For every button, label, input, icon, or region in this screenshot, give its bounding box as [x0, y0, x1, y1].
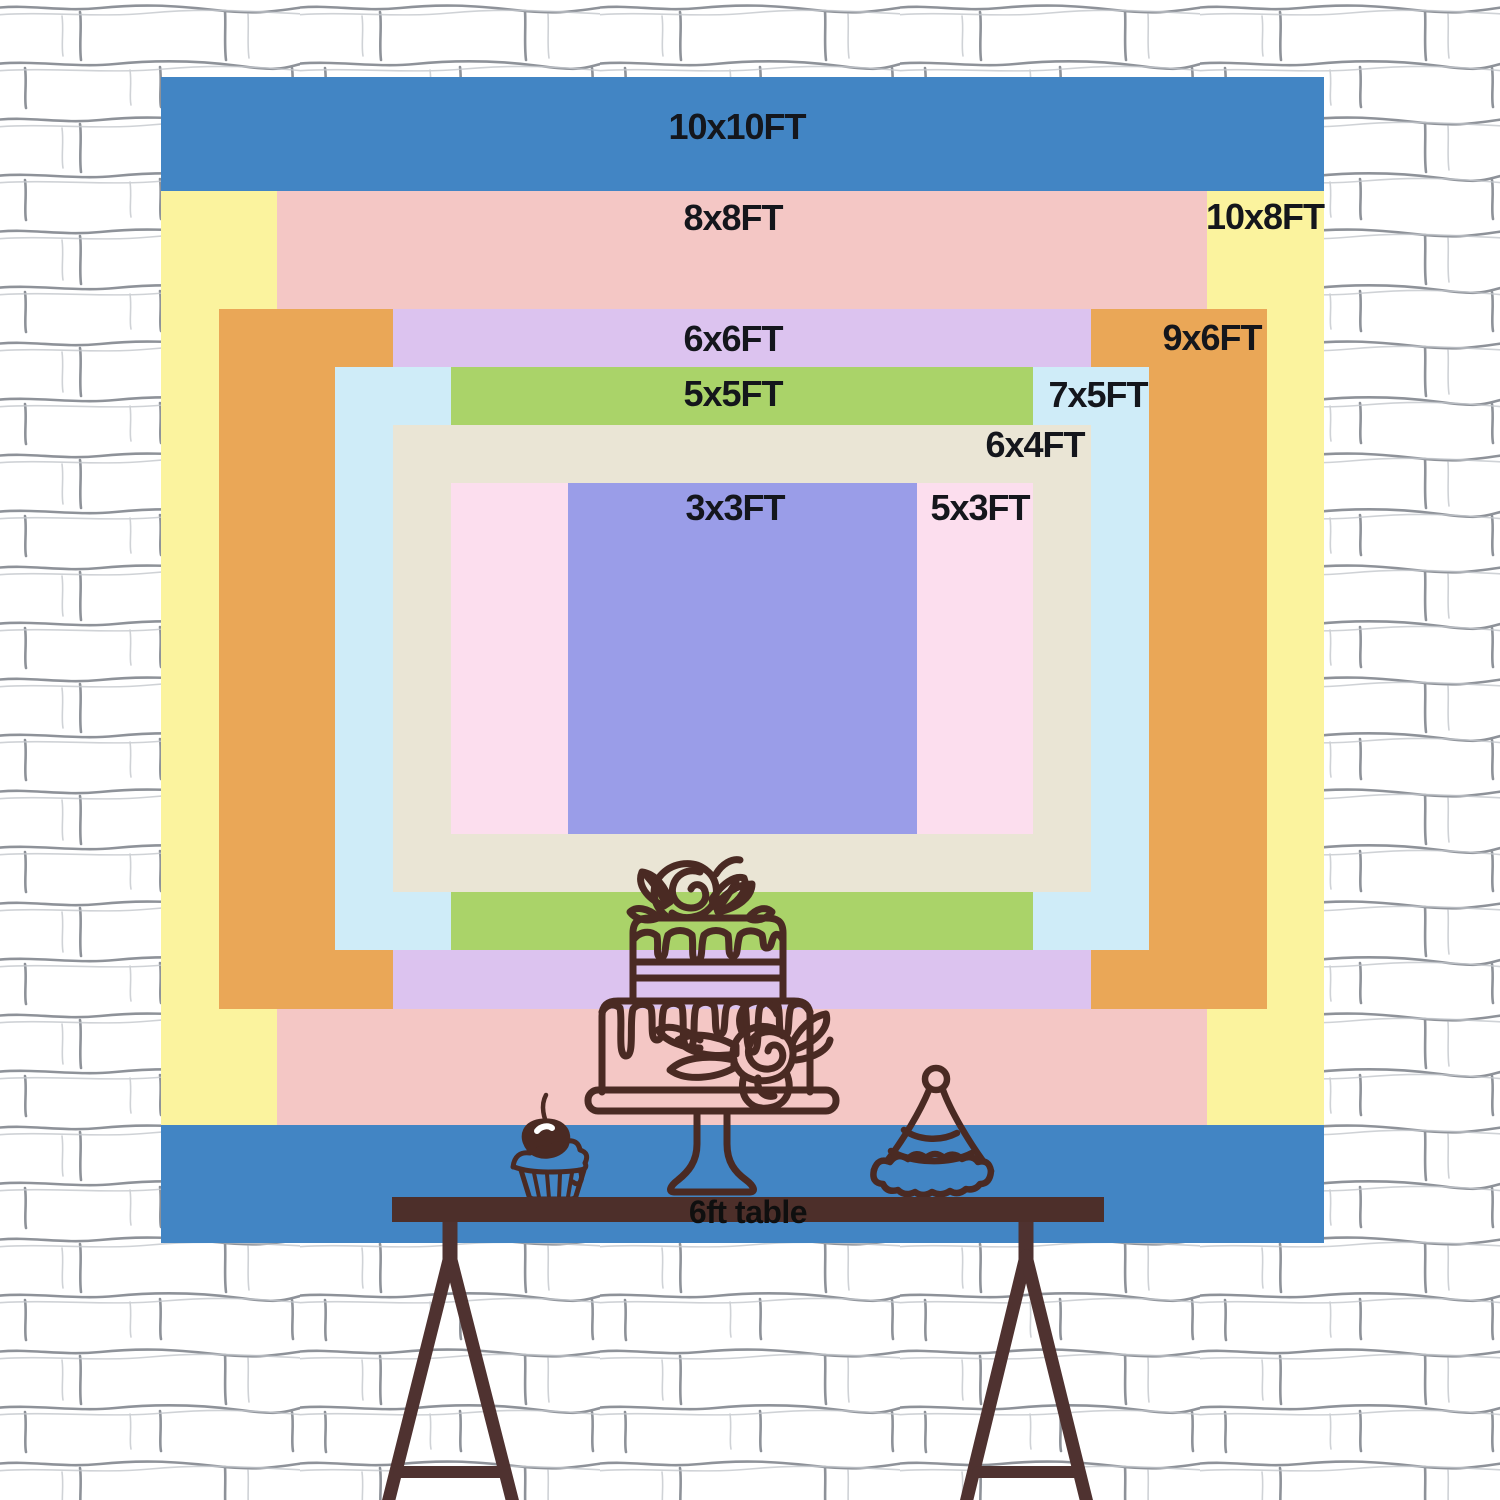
- table-legs: [387, 1219, 1088, 1500]
- table-length-label: 6ft table: [689, 1194, 807, 1231]
- backdrop-size-chart-scene: 10x10FT 8x8FT 10x8FT 6x6FT 9x6FT 5x5FT 7…: [0, 0, 1500, 1500]
- dessert-line-art: [0, 0, 1500, 1500]
- dessert-table-top: 6ft table: [392, 1197, 1104, 1222]
- tiered-cake-icon: [588, 860, 836, 1192]
- cupcake-icon: [513, 1095, 587, 1199]
- party-hat-icon: [873, 1068, 991, 1195]
